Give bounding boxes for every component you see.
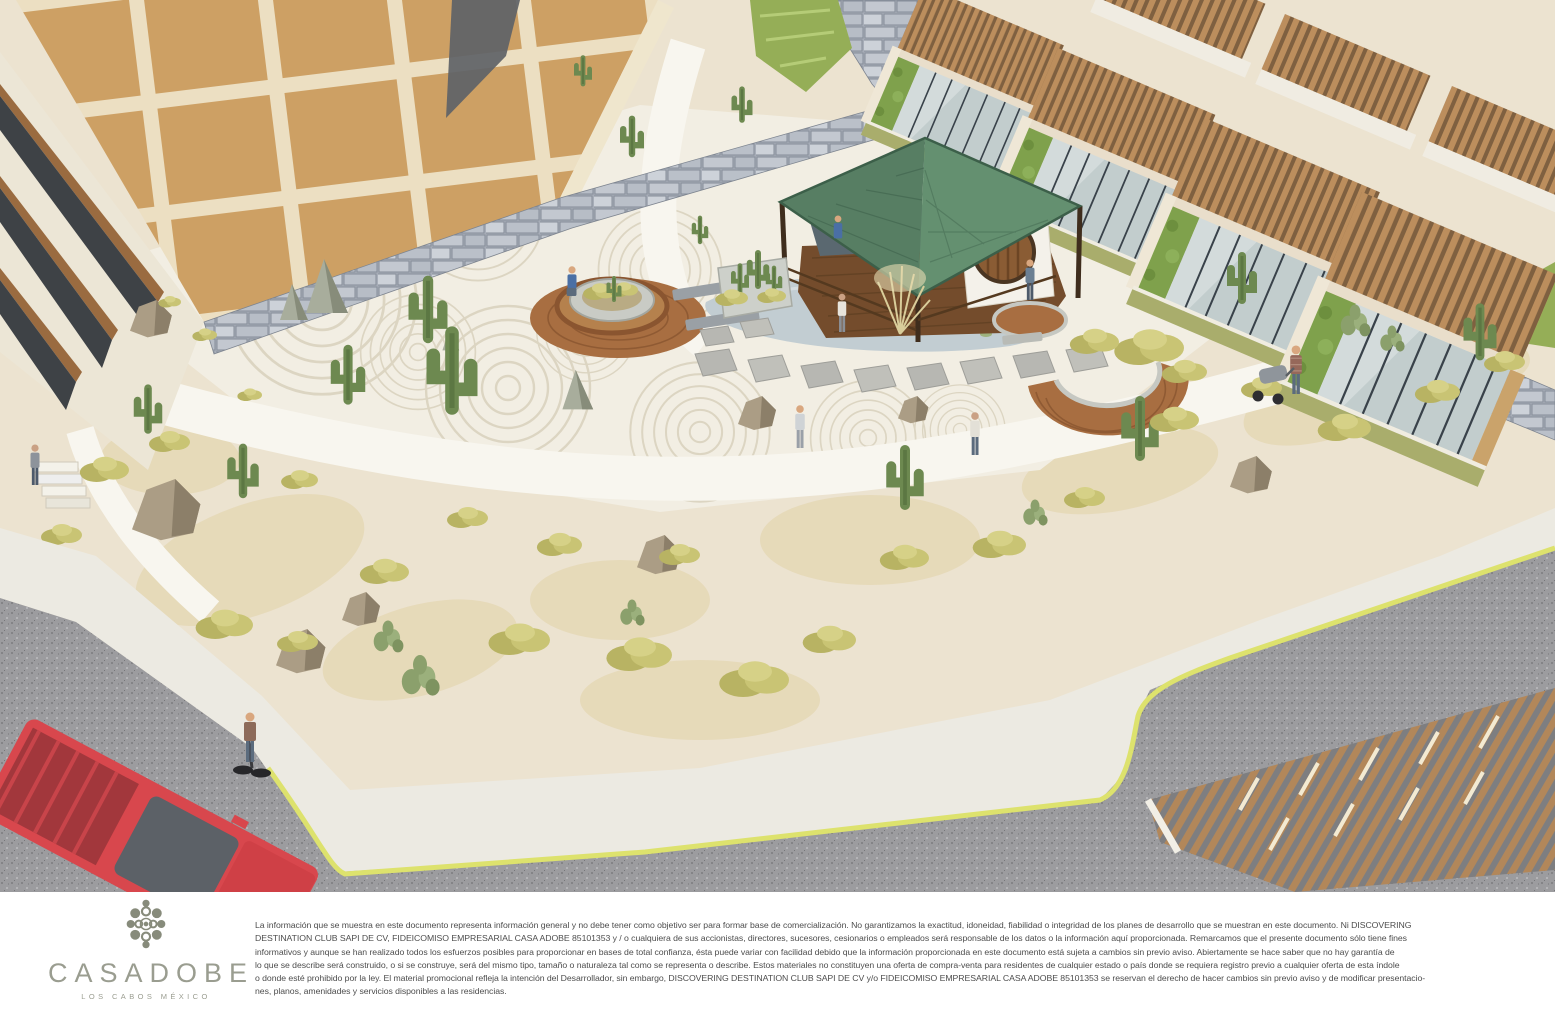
disclaimer-line: informativos y aunque se han realizado t… [255, 946, 1547, 959]
person-at-railing [834, 215, 843, 238]
disclaimer-line: nes, planos, amenidades y servicios disp… [255, 985, 1547, 998]
brand-logo: CASADOBE LOS CABOS MÉXICO [48, 896, 244, 1001]
casadobe-rosette-icon [119, 896, 173, 952]
disclaimer-line: DESTINATION CLUB SAPI DE CV, FIDEICOMISO… [255, 932, 1547, 945]
brand-name: CASADOBE [48, 958, 244, 989]
legal-disclaimer: La información que se muestra en este do… [255, 919, 1547, 999]
footer: CASADOBE LOS CABOS MÉXICO La información… [0, 892, 1555, 1024]
architectural-rendering [0, 0, 1555, 892]
disclaimer-line: La información que se muestra en este do… [255, 919, 1547, 932]
disclaimer-line: lo que se describe será construido, o si… [255, 959, 1547, 972]
brochure-page: CASADOBE LOS CABOS MÉXICO La información… [0, 0, 1555, 1024]
disclaimer-line: o donde esté prohibido por la ley. El ma… [255, 972, 1547, 985]
brand-tagline: LOS CABOS MÉXICO [48, 992, 244, 1001]
